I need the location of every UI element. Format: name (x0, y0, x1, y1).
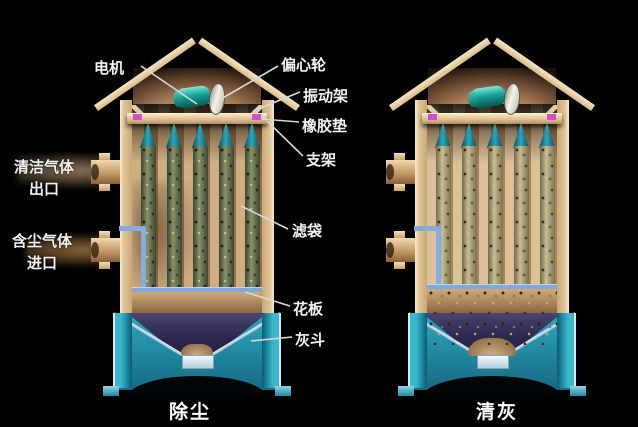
label-motor: 电机 (94, 57, 124, 78)
caption-dust-collecting-mode: 除尘 (140, 397, 240, 424)
roof-rake-left (389, 38, 491, 111)
label-dusty-gas-inlet-line1: 含尘气体 (6, 231, 78, 253)
label-rubber-pad: 橡胶垫 (302, 115, 347, 136)
baghouse-dust-collector-diagram: 电机 偏心轮 振动架 橡胶垫 支架 滤袋 花板 灰斗 清洁气体 出口 含尘气体 … (0, 0, 638, 427)
roof-left (97, 42, 297, 402)
label-ash-hopper: 灰斗 (295, 329, 325, 350)
label-vibration-frame: 振动架 (303, 85, 348, 106)
roof-rake-right (493, 38, 595, 111)
label-dusty-gas-inlet: 含尘气体 进口 (6, 231, 78, 275)
label-clean-gas-outlet-line2: 出口 (8, 179, 80, 201)
caption-dust-cleaning-mode: 清灰 (447, 397, 547, 424)
roof-right (392, 42, 592, 402)
label-clean-gas-outlet: 清洁气体 出口 (8, 157, 80, 201)
label-support-frame: 支架 (306, 149, 336, 170)
label-clean-gas-outlet-line1: 清洁气体 (8, 157, 80, 179)
label-filter-bag: 滤袋 (292, 220, 322, 241)
label-dusty-gas-inlet-line2: 进口 (6, 253, 78, 275)
label-perforated-plate: 花板 (293, 298, 323, 319)
label-eccentric-wheel: 偏心轮 (281, 54, 326, 75)
